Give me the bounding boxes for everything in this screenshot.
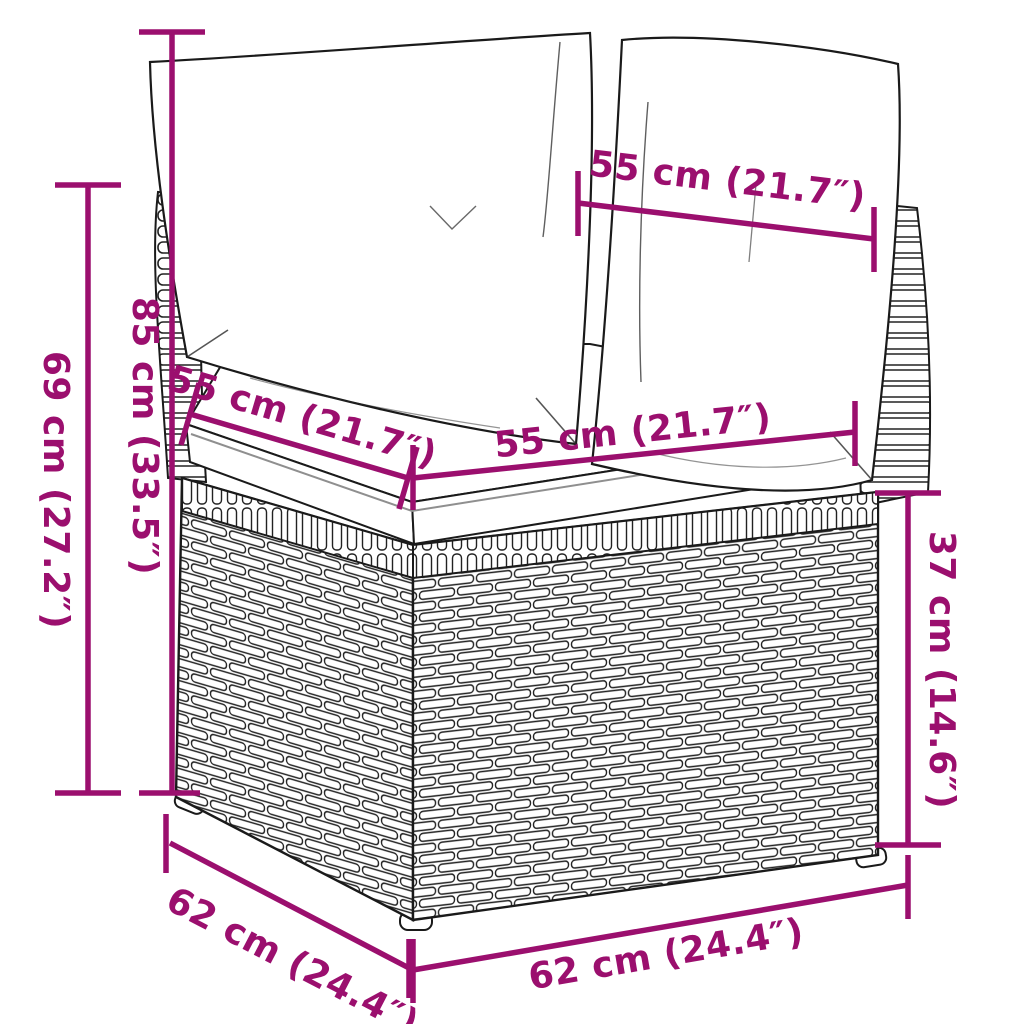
furniture-illustration: 55 cm (21.7″) 85 cm (33.5″) 69 cm (27.2″… bbox=[0, 0, 1024, 1024]
label-back-height: 69 cm (27.2″) bbox=[35, 351, 76, 629]
label-base-height: 37 cm (14.6″) bbox=[921, 531, 962, 809]
label-total-height: 85 cm (33.5″) bbox=[124, 297, 165, 575]
seat-base bbox=[173, 478, 888, 930]
dimension-diagram: 55 cm (21.7″) 85 cm (33.5″) 69 cm (27.2″… bbox=[0, 0, 1024, 1024]
